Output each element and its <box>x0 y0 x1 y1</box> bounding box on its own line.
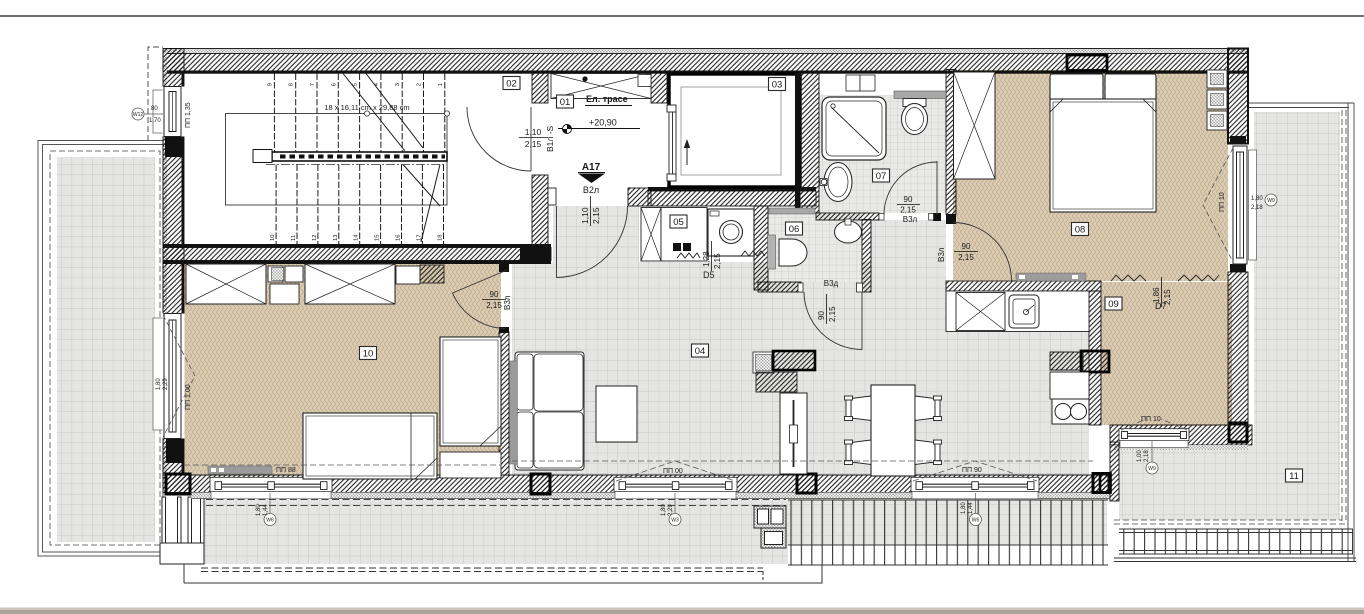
svg-text:D7: D7 <box>1155 301 1167 311</box>
svg-text:3: 3 <box>395 83 401 86</box>
svg-text:10: 10 <box>270 235 276 241</box>
svg-text:В3д: В3д <box>824 279 839 288</box>
svg-text:В3л: В3л <box>903 215 918 224</box>
svg-text:W12: W12 <box>133 112 144 118</box>
svg-text:1,80: 1,80 <box>1251 196 1263 202</box>
svg-text:1,80: 1,80 <box>256 504 262 516</box>
svg-text:9: 9 <box>267 83 273 86</box>
svg-text:W3: W3 <box>671 518 679 524</box>
svg-text:1: 1 <box>438 83 444 86</box>
svg-text:14: 14 <box>354 234 360 241</box>
svg-text:В2л: В2л <box>583 185 599 195</box>
svg-text:ПП 1,00: ПП 1,00 <box>185 384 192 410</box>
svg-text:2,18: 2,18 <box>1251 205 1263 211</box>
svg-text:ПП 88: ПП 88 <box>276 467 296 474</box>
svg-text:В3л: В3л <box>503 295 512 310</box>
svg-text:11: 11 <box>291 235 297 241</box>
svg-text:2,18: 2,18 <box>1144 450 1150 462</box>
svg-text:2,15: 2,15 <box>591 207 601 224</box>
svg-text:ПП 10: ПП 10 <box>1141 416 1161 423</box>
svg-text:1,44: 1,44 <box>968 502 974 514</box>
svg-text:09: 09 <box>1108 299 1119 310</box>
svg-text:W6: W6 <box>266 518 274 524</box>
svg-text:06: 06 <box>789 224 800 235</box>
svg-text:A17: A17 <box>582 162 601 173</box>
svg-text:7: 7 <box>310 83 316 86</box>
svg-text:2,15: 2,15 <box>713 253 722 269</box>
svg-text:1,28: 1,28 <box>702 251 711 267</box>
svg-text:5: 5 <box>353 83 359 86</box>
svg-text:2,15: 2,15 <box>486 301 502 310</box>
svg-text:1,10: 1,10 <box>525 127 542 137</box>
svg-text:02: 02 <box>506 79 517 90</box>
svg-text:2,29: 2,29 <box>163 378 169 390</box>
svg-text:16: 16 <box>396 235 402 241</box>
svg-text:01: 01 <box>560 97 571 108</box>
svg-text:1,10: 1,10 <box>580 207 590 224</box>
svg-text:90: 90 <box>962 242 971 251</box>
svg-text:90: 90 <box>817 311 826 320</box>
svg-text:05: 05 <box>673 217 684 228</box>
svg-text:10: 10 <box>363 349 374 360</box>
svg-text:ПП 1,35: ПП 1,35 <box>185 102 192 128</box>
svg-text:1,70: 1,70 <box>149 118 161 124</box>
svg-text:W9: W9 <box>1148 466 1156 472</box>
svg-text:13: 13 <box>333 235 339 241</box>
svg-text:18: 18 <box>438 235 444 241</box>
svg-text:2,15: 2,15 <box>828 306 837 322</box>
svg-text:2: 2 <box>417 83 423 86</box>
svg-text:04: 04 <box>695 346 706 357</box>
svg-text:12: 12 <box>312 235 318 241</box>
svg-text:80: 80 <box>151 106 158 112</box>
svg-text:8: 8 <box>289 83 295 86</box>
svg-text:1,80: 1,80 <box>961 502 967 514</box>
svg-text:90: 90 <box>904 195 913 204</box>
svg-text:ПП 00: ПП 00 <box>663 468 683 475</box>
svg-text:6: 6 <box>331 83 337 86</box>
svg-text:18 x 16,11 cm x 29,88 cm: 18 x 16,11 cm x 29,88 cm <box>324 103 409 112</box>
svg-text:07: 07 <box>876 171 887 182</box>
svg-text:Ел. трасе: Ел. трасе <box>586 94 628 104</box>
svg-text:+20,90: +20,90 <box>589 118 617 128</box>
svg-text:W9: W9 <box>1267 198 1275 204</box>
svg-text:2,15: 2,15 <box>958 253 974 262</box>
svg-text:ПП 10: ПП 10 <box>1219 192 1226 212</box>
svg-text:1,80: 1,80 <box>156 378 162 390</box>
svg-text:2,15: 2,15 <box>900 206 916 215</box>
svg-text:В1л -S: В1л -S <box>545 125 555 152</box>
svg-text:В3л: В3л <box>937 247 946 262</box>
svg-text:08: 08 <box>1075 225 1086 236</box>
svg-text:03: 03 <box>772 80 783 91</box>
svg-text:15: 15 <box>375 235 381 241</box>
svg-text:1,00: 1,00 <box>1137 450 1143 462</box>
svg-text:ПП 90: ПП 90 <box>962 467 982 474</box>
svg-text:2,15: 2,15 <box>525 139 542 149</box>
svg-text:11: 11 <box>1289 471 1299 482</box>
svg-text:17: 17 <box>416 235 422 241</box>
svg-text:1,80: 1,80 <box>661 504 667 516</box>
svg-text:W6: W6 <box>972 518 980 524</box>
svg-text:D5: D5 <box>703 270 715 280</box>
svg-text:90: 90 <box>490 290 499 299</box>
